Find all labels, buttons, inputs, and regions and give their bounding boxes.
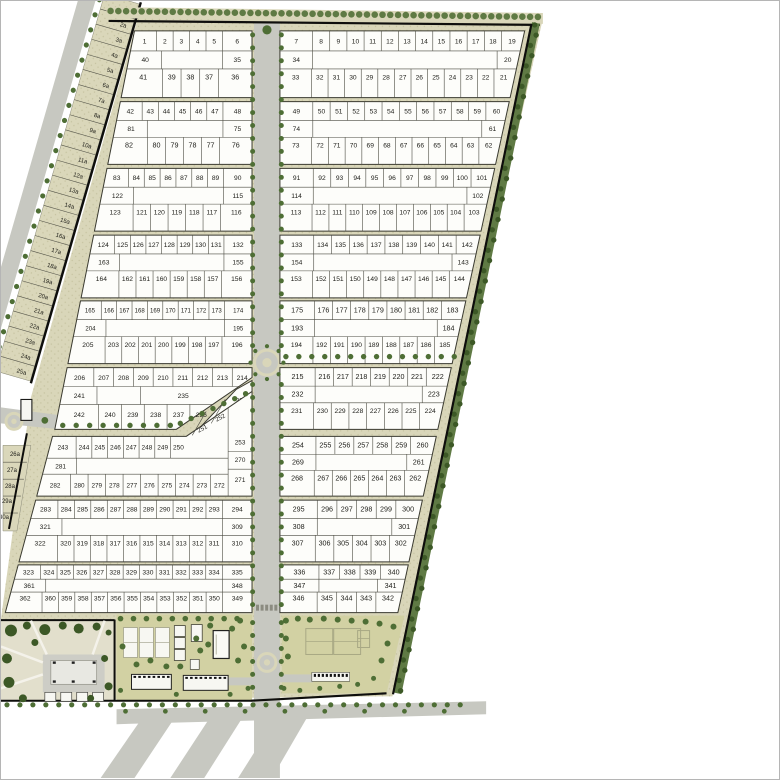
plot-312: 312 [192,540,203,547]
park-kiosk [93,692,104,701]
plot-53: 53 [370,108,378,115]
plot-7: 7 [294,38,298,45]
plot-318: 318 [93,540,104,547]
amenity-building [190,659,199,669]
plot-279: 279 [91,483,102,490]
plot-227: 227 [370,408,381,415]
plot-142: 142 [462,242,473,249]
block-R4: 1331341351361371381391401411421541431531… [280,235,480,298]
plot-156: 156 [231,276,242,283]
block-L8: 2832842852862872882892902912922932943213… [19,500,252,562]
plot-108: 108 [383,209,394,216]
gatehouse [21,399,32,420]
plot-153: 153 [291,276,302,283]
plot-164: 164 [96,276,107,283]
plot-166: 166 [104,309,115,315]
plot-213: 213 [217,375,228,382]
plot-278: 278 [109,483,120,490]
block-R1: 7891011121314151617181934203332313029282… [280,31,525,98]
plot-76: 76 [232,142,240,150]
plot-30a: 30a [1,515,10,521]
plot-39: 39 [168,74,176,82]
plot-129: 129 [179,242,190,249]
plot-303: 303 [374,539,386,547]
plot-28: 28 [382,75,390,82]
block-R7: 2542552562572582592602692612682672662652… [280,436,436,496]
plot-157: 157 [207,276,218,283]
plot-26a: 26a [10,452,21,458]
plot-270: 270 [235,457,246,464]
plot-120: 120 [154,209,165,216]
block-R2: 4950515253545556575859607461737271706968… [280,102,509,165]
roundabout-central [253,349,281,377]
plot-72: 72 [316,143,324,150]
plot-342: 342 [382,594,394,602]
plot-28a: 28a [5,484,16,490]
plot-343: 343 [360,594,372,602]
plot-64: 64 [450,143,458,150]
plot-50: 50 [318,108,326,115]
plot-189: 189 [368,342,379,349]
plot-167: 167 [119,309,130,315]
plot-2: 2 [163,38,167,45]
plot-109: 109 [366,209,377,216]
plot-326: 326 [76,569,87,576]
plot-135: 135 [335,242,346,249]
plot-352: 352 [176,595,187,602]
plot-285: 285 [77,507,88,514]
roundabout-south [257,652,278,673]
plot-176: 176 [317,307,329,315]
plot-231: 231 [291,408,302,415]
plot-121: 121 [136,209,147,216]
plot-35: 35 [234,57,242,64]
plot-199: 199 [175,342,186,349]
plot-24: 24 [449,75,457,82]
plot-299: 299 [380,506,392,514]
plot-353: 353 [160,595,171,602]
plot-274: 274 [179,483,190,490]
plot-320: 320 [60,540,71,547]
plot-131: 131 [211,242,222,249]
plot-216: 216 [318,373,330,381]
plot-113: 113 [291,209,302,216]
plot-258: 258 [376,442,388,450]
plot-146: 146 [418,276,429,283]
plot-323: 323 [23,569,34,576]
plot-214: 214 [237,375,248,382]
plot-87: 87 [180,175,188,182]
plot-119: 119 [171,209,182,216]
plot-99: 99 [441,175,449,182]
plot-334: 334 [208,569,219,576]
plot-144: 144 [454,276,465,283]
plot-235: 235 [178,393,189,400]
plot-284: 284 [61,507,72,514]
plot-58: 58 [456,108,464,115]
plot-21: 21 [500,75,508,82]
plot-275: 275 [162,483,173,490]
plot-237: 237 [173,412,184,419]
plot-204: 204 [85,326,96,332]
plot-302: 302 [395,539,407,547]
plot-298: 298 [360,506,372,514]
plot-306: 306 [319,539,331,547]
plot-241: 241 [74,393,85,400]
plot-114: 114 [291,193,302,200]
plot-332: 332 [175,569,186,576]
plot-220: 220 [392,373,404,381]
plot-149: 149 [367,276,378,283]
plot-130: 130 [195,242,206,249]
plot-141: 141 [442,242,453,249]
plot-350: 350 [209,595,220,602]
plot-296: 296 [321,506,333,514]
plot-49: 49 [293,108,301,115]
plot-232: 232 [292,391,304,399]
plot-266: 266 [335,474,347,482]
plot-89: 89 [212,175,220,182]
plot-221: 221 [411,373,423,381]
plot-242: 242 [74,412,85,419]
plot-191: 191 [333,342,344,349]
plot-105: 105 [433,209,444,216]
plot-125: 125 [117,242,128,249]
plot-292: 292 [192,507,203,514]
plot-88: 88 [196,175,204,182]
amenity-drive [280,674,313,682]
plot-55: 55 [404,108,412,115]
plot-314: 314 [159,540,170,547]
plot-124: 124 [98,242,109,249]
plot-243: 243 [57,444,68,451]
plot-206: 206 [74,375,85,382]
plot-313: 313 [176,540,187,547]
plot-27a: 27a [7,468,18,474]
plot-293: 293 [209,507,220,514]
plot-223: 223 [428,391,440,399]
plot-46: 46 [195,108,203,115]
plot-86: 86 [164,175,172,182]
plot-34: 34 [293,57,301,64]
park-kiosk [77,692,88,701]
plot-127: 127 [148,242,159,249]
plot-100: 100 [457,175,468,182]
plot-41: 41 [139,74,147,82]
plot-111: 111 [332,209,342,216]
plot-45: 45 [179,108,187,115]
plot-290: 290 [159,507,170,514]
plot-165: 165 [85,309,96,315]
plot-331: 331 [159,569,170,576]
plot-291: 291 [176,507,187,514]
plot-170: 170 [165,309,176,315]
plot-356: 356 [110,595,121,602]
plot-269: 269 [292,459,304,467]
plot-5: 5 [212,38,216,45]
plot-226: 226 [388,408,399,415]
plot-51: 51 [335,108,343,115]
plot-336: 336 [293,568,305,576]
plot-22: 22 [482,75,490,82]
block-L3: 8384858687888990122115123121120119118117… [94,168,252,231]
plot-143: 143 [458,260,469,267]
plot-349: 349 [232,595,243,602]
plot-286: 286 [93,507,104,514]
plot-228: 228 [352,408,363,415]
plot-73: 73 [292,143,300,150]
plot-256: 256 [338,442,350,450]
plot-18: 18 [489,38,497,45]
plot-339: 339 [364,568,376,576]
plot-182: 182 [426,307,438,315]
pool-building [213,631,229,659]
plot-174: 174 [233,309,244,315]
plot-254: 254 [292,442,304,450]
plot-32: 32 [316,75,324,82]
plot-328: 328 [109,569,120,576]
plot-178: 178 [354,307,366,315]
plot-25: 25 [432,75,440,82]
plot-188: 188 [386,342,397,349]
plot-263: 263 [389,474,401,482]
plot-3: 3 [179,38,183,45]
plot-169: 169 [150,309,161,315]
plot-68: 68 [383,143,391,150]
park-kiosk [45,692,56,701]
plot-360: 360 [45,595,56,602]
plot-196: 196 [231,342,242,349]
plot-333: 333 [192,569,203,576]
plot-322: 322 [35,540,46,547]
plot-240: 240 [104,412,115,419]
plot-29: 29 [366,75,374,82]
plot-345: 345 [321,594,333,602]
plot-195: 195 [233,326,244,332]
plot-282: 282 [50,483,61,490]
plot-29a: 29a [2,499,13,505]
plot-151: 151 [333,276,344,283]
plot-217: 217 [337,373,349,381]
plot-54: 54 [387,108,395,115]
block-R9: 336337338339340347341346345344343342 [280,565,408,613]
plot-83: 83 [113,175,121,182]
plot-77: 77 [207,142,215,150]
plot-172: 172 [196,309,207,315]
plot-8: 8 [319,38,323,45]
plot-140: 140 [424,242,435,249]
plot-271: 271 [235,477,246,484]
plot-107: 107 [399,209,410,216]
plot-329: 329 [126,569,137,576]
plot-91: 91 [293,175,301,182]
plot-171: 171 [181,309,192,315]
site-plan-svg: 1234564035413938373642434445464748817582… [1,1,778,778]
plot-209: 209 [138,375,149,382]
plot-63: 63 [467,143,475,150]
plot-261: 261 [413,459,425,467]
plot-20: 20 [504,57,512,64]
south-stub-road [170,718,242,778]
plot-186: 186 [420,342,431,349]
plot-38: 38 [186,74,194,82]
plot-62: 62 [485,143,493,150]
plot-66: 66 [417,143,425,150]
plot-1: 1 [143,38,147,45]
plot-98: 98 [423,175,431,182]
plot-259: 259 [395,442,407,450]
plot-154: 154 [291,260,302,267]
plot-218: 218 [355,373,367,381]
plot-210: 210 [157,375,168,382]
plot-134: 134 [317,242,328,249]
plot-208: 208 [118,375,129,382]
block-L9: 3233243253263273283293303313323333343353… [5,565,252,613]
plot-75: 75 [234,126,242,133]
plot-197: 197 [208,342,219,349]
plot-359: 359 [61,595,72,602]
plot-179: 179 [372,307,384,315]
plot-276: 276 [144,483,155,490]
plot-65: 65 [433,143,441,150]
plot-340: 340 [388,568,400,576]
plot-118: 118 [189,209,200,216]
plot-187: 187 [403,342,414,349]
plot-136: 136 [353,242,364,249]
plot-289: 289 [143,507,154,514]
plot-309: 309 [232,524,243,531]
plot-319: 319 [77,540,88,547]
plot-150: 150 [350,276,361,283]
plot-139: 139 [406,242,417,249]
plot-273: 273 [197,483,208,490]
amenity-building [174,649,185,660]
plot-152: 152 [315,276,326,283]
plot-117: 117 [206,209,217,216]
plot-36: 36 [231,74,239,82]
plot-101: 101 [476,175,487,182]
plot-37: 37 [205,74,213,82]
plot-358: 358 [77,595,88,602]
plot-307: 307 [292,539,304,547]
plot-272: 272 [214,483,225,490]
plot-137: 137 [370,242,381,249]
plot-19: 19 [508,38,516,45]
plot-67: 67 [400,143,408,150]
plot-96: 96 [388,175,396,182]
plot-122: 122 [112,193,123,200]
plot-190: 190 [351,342,362,349]
plot-316: 316 [126,540,137,547]
plot-253: 253 [235,439,246,446]
plot-249: 249 [157,444,168,451]
plot-128: 128 [164,242,175,249]
plot-193: 193 [291,324,303,332]
plot-177: 177 [336,307,348,315]
plot-43: 43 [147,108,155,115]
plot-301: 301 [398,523,410,531]
plot-325: 325 [60,569,71,576]
plot-205: 205 [82,342,93,349]
plot-44: 44 [163,108,171,115]
plot-347: 347 [293,582,305,590]
block-R6: 2152162172182192202212222322232312302292… [280,368,451,430]
amenity-building [174,638,185,649]
plot-9: 9 [336,38,340,45]
plot-15: 15 [438,38,446,45]
plot-361: 361 [24,583,35,590]
plot-52: 52 [352,108,360,115]
plot-338: 338 [344,568,356,576]
plot-305: 305 [337,539,349,547]
plot-47: 47 [211,108,219,115]
plot-26: 26 [416,75,424,82]
plot-268: 268 [291,474,303,482]
plot-17: 17 [472,38,480,45]
plot-74: 74 [293,126,301,133]
plot-200: 200 [158,342,169,349]
plot-42: 42 [127,108,135,115]
plot-16: 16 [455,38,463,45]
plot-222: 222 [432,373,444,381]
plot-310: 310 [232,540,243,547]
plot-244: 244 [79,444,90,451]
plot-354: 354 [143,595,154,602]
plot-173: 173 [212,309,223,315]
plot-283: 283 [40,507,51,514]
plot-194: 194 [291,342,302,349]
plot-295: 295 [293,506,305,514]
plot-346: 346 [293,594,305,602]
plot-300: 300 [402,506,414,514]
plot-27: 27 [399,75,407,82]
plot-155: 155 [232,260,243,267]
plot-160: 160 [156,276,167,283]
south-stub-road [101,721,173,778]
plot-70: 70 [350,143,358,150]
plot-351: 351 [192,595,203,602]
plot-183: 183 [447,307,459,315]
plot-184: 184 [443,324,455,332]
plot-317: 317 [110,540,121,547]
site-plan-page: 1234564035413938373642434445464748817582… [0,0,780,780]
plot-247: 247 [126,444,137,451]
plot-246: 246 [110,444,121,451]
plot-175: 175 [291,307,303,315]
plot-294: 294 [232,507,243,514]
plot-180: 180 [390,307,402,315]
plot-30: 30 [349,75,357,82]
plot-245: 245 [94,444,105,451]
plot-215: 215 [292,373,304,381]
plot-192: 192 [316,342,327,349]
plot-159: 159 [173,276,184,283]
plot-23: 23 [465,75,473,82]
plot-168: 168 [135,309,146,315]
plot-71: 71 [333,143,341,150]
plot-145: 145 [435,276,446,283]
plot-90: 90 [234,175,242,182]
plot-250: 250 [173,444,184,451]
block-R3: 9192939495969798991001011141021131121111… [280,168,495,231]
plot-207: 207 [98,375,109,382]
plot-327: 327 [93,569,104,576]
plot-355: 355 [127,595,138,602]
plot-161: 161 [139,276,150,283]
plot-239: 239 [127,412,138,419]
plot-203: 203 [108,342,119,349]
plot-48: 48 [234,108,242,115]
